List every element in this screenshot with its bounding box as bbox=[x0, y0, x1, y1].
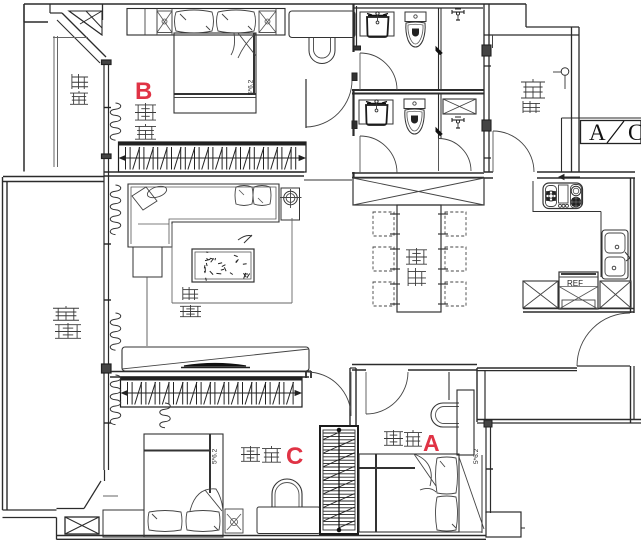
svg-text:5*6.2: 5*6.2 bbox=[248, 79, 255, 95]
svg-text:5*6.2: 5*6.2 bbox=[212, 448, 219, 464]
svg-text:A: A bbox=[423, 430, 440, 456]
svg-text:C: C bbox=[286, 443, 303, 470]
svg-text:C: C bbox=[628, 120, 641, 145]
svg-text:B: B bbox=[135, 78, 152, 105]
svg-text:A: A bbox=[589, 120, 606, 145]
svg-text:5*6.2: 5*6.2 bbox=[473, 448, 480, 464]
